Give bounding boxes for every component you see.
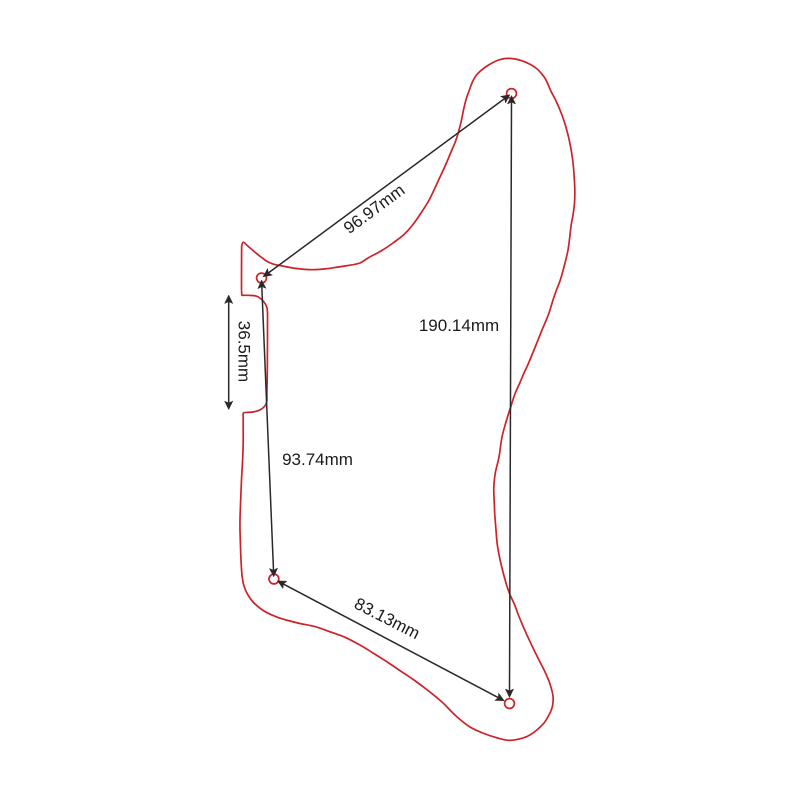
svg-text:93.74mm: 93.74mm <box>282 450 353 469</box>
svg-text:96.97mm: 96.97mm <box>340 180 408 237</box>
svg-text:190.14mm: 190.14mm <box>419 316 499 335</box>
svg-text:36.5mm: 36.5mm <box>235 321 254 382</box>
svg-text:83.13mm: 83.13mm <box>351 594 423 643</box>
